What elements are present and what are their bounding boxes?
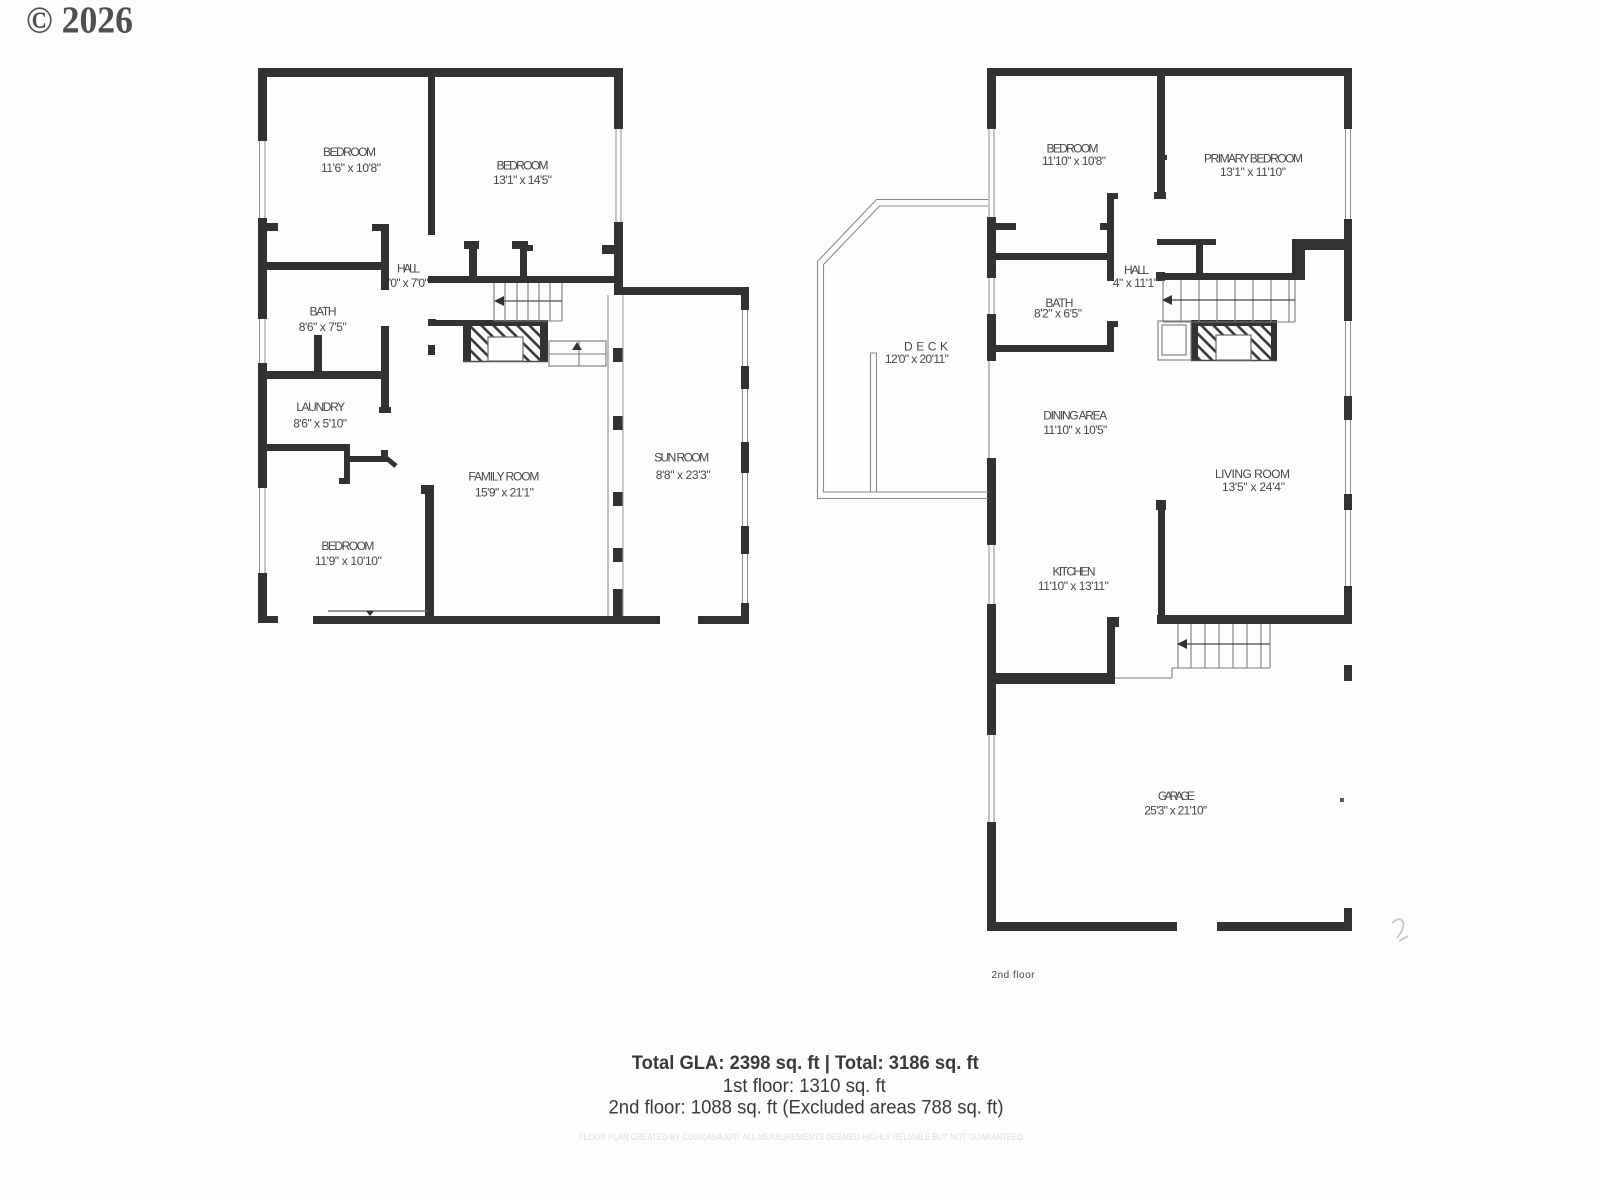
svg-text:BEDROOM: BEDROOM <box>323 145 376 159</box>
svg-text:8'6" x 7'5": 8'6" x 7'5" <box>299 320 347 334</box>
svg-text:'4" x 11'1": '4" x 11'1" <box>1111 276 1158 290</box>
svg-text:2nd floor: 1088 sq. ft (Exclud: 2nd floor: 1088 sq. ft (Excluded areas 7… <box>609 1097 1004 1118</box>
svg-text:'0" x 7'0": '0" x 7'0" <box>389 276 429 290</box>
svg-text:HALL: HALL <box>1124 263 1149 277</box>
svg-text:12'0" x 20'11": 12'0" x 20'11" <box>885 352 949 366</box>
svg-text:1st floor: 1310 sq. ft: 1st floor: 1310 sq. ft <box>723 1076 887 1097</box>
svg-text:8'8" x 23'3": 8'8" x 23'3" <box>656 468 711 482</box>
svg-text:2nd floor: 2nd floor <box>992 970 1036 981</box>
svg-text:HALL: HALL <box>397 262 420 276</box>
svg-text:11'6" x 10'8": 11'6" x 10'8" <box>321 161 381 175</box>
svg-text:DINING AREA: DINING AREA <box>1043 409 1107 423</box>
svg-text:LAUNDRY: LAUNDRY <box>296 400 345 414</box>
svg-text:PRIMARY BEDROOM: PRIMARY BEDROOM <box>1204 152 1303 166</box>
svg-text:SUN ROOM: SUN ROOM <box>654 451 709 465</box>
svg-text:BEDROOM: BEDROOM <box>497 159 549 173</box>
svg-text:11'9" x 10'10": 11'9" x 10'10" <box>315 554 382 568</box>
svg-text:KITCHEN: KITCHEN <box>1053 565 1096 579</box>
svg-text:11'10" x 13'11": 11'10" x 13'11" <box>1038 579 1109 593</box>
svg-text:13'1" x 14'5": 13'1" x 14'5" <box>493 173 552 187</box>
svg-text:BATH: BATH <box>310 305 337 319</box>
svg-text:FAMILY ROOM: FAMILY ROOM <box>468 470 539 484</box>
svg-text:LIVING ROOM: LIVING ROOM <box>1215 467 1290 481</box>
svg-text:15'9" x 21'1": 15'9" x 21'1" <box>475 486 534 500</box>
svg-text:BEDROOM: BEDROOM <box>321 539 374 553</box>
svg-text:Total GLA: 2398 sq. ft | Total: Total GLA: 2398 sq. ft | Total: 3186 sq.… <box>632 1053 980 1074</box>
svg-text:11'10" x 10'5": 11'10" x 10'5" <box>1043 423 1107 437</box>
svg-text:25'3" x 21'10": 25'3" x 21'10" <box>1144 804 1207 818</box>
svg-text:13'1" x 11'10": 13'1" x 11'10" <box>1220 165 1286 179</box>
svg-text:© 2026: © 2026 <box>26 0 133 42</box>
svg-text:8'6" x 5'10": 8'6" x 5'10" <box>293 417 347 431</box>
svg-text:13'5" x 24'4": 13'5" x 24'4" <box>1222 480 1285 494</box>
svg-text:11'10" x 10'8": 11'10" x 10'8" <box>1042 154 1106 168</box>
svg-text:8'2" x 6'5": 8'2" x 6'5" <box>1034 307 1082 321</box>
svg-text:FLOOR PLAN CREATED BY CUBICASA: FLOOR PLAN CREATED BY CUBICASA APP. ALL … <box>579 1132 1023 1142</box>
svg-text:GARAGE: GARAGE <box>1158 789 1195 803</box>
